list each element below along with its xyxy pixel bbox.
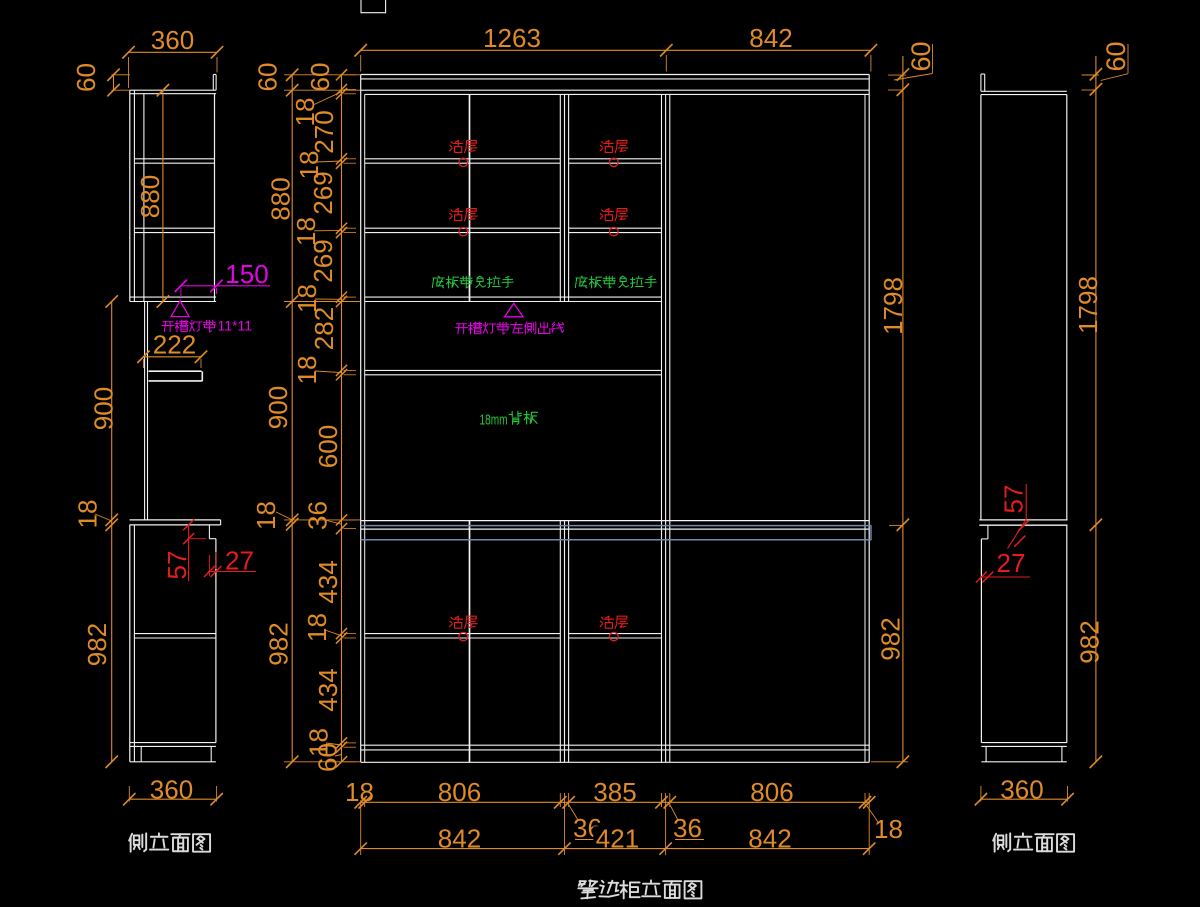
svg-text:434: 434 [313,560,343,603]
svg-text:842: 842 [748,823,791,853]
svg-text:222: 222 [153,330,196,360]
svg-text:18: 18 [874,814,903,844]
svg-text:360: 360 [1000,774,1043,804]
svg-text:269: 269 [308,239,338,282]
svg-text:150: 150 [225,259,268,289]
svg-text:36: 36 [303,501,333,530]
svg-text:982: 982 [876,617,906,660]
svg-text:360: 360 [151,25,194,55]
svg-text:270: 270 [309,110,339,153]
svg-text:60: 60 [305,63,335,92]
svg-text:269: 269 [308,171,338,214]
svg-text:18: 18 [251,501,281,530]
svg-text:360: 360 [150,774,193,804]
svg-text:982: 982 [1075,620,1105,663]
svg-text:1798: 1798 [1073,276,1103,334]
svg-text:900: 900 [263,386,293,429]
svg-text:60: 60 [71,63,101,92]
svg-text:600: 600 [313,425,343,468]
svg-text:60: 60 [1101,41,1131,71]
svg-text:806: 806 [750,777,793,807]
svg-text:60: 60 [253,63,283,92]
svg-text:57: 57 [999,485,1029,514]
svg-text:982: 982 [264,622,294,665]
svg-text:1798: 1798 [878,277,908,335]
svg-text:434: 434 [313,668,343,711]
svg-text:60: 60 [313,743,343,772]
svg-text:11*11: 11*11 [218,318,253,334]
svg-text:900: 900 [89,387,119,430]
svg-text:60: 60 [906,41,936,71]
svg-text:282: 282 [309,307,339,350]
svg-text:36: 36 [673,813,702,843]
svg-text:842: 842 [438,823,481,853]
svg-text:27: 27 [225,546,254,576]
svg-text:18: 18 [292,356,322,385]
svg-text:18: 18 [73,500,103,529]
svg-text:842: 842 [749,23,792,53]
svg-text:18mm: 18mm [480,412,508,429]
svg-text:385: 385 [593,777,636,807]
svg-text:982: 982 [82,623,112,666]
svg-text:18: 18 [302,613,332,642]
svg-text:57: 57 [162,551,192,580]
svg-text:880: 880 [266,177,296,220]
svg-text:806: 806 [438,777,481,807]
svg-text:1263: 1263 [483,23,541,53]
svg-text:421: 421 [596,823,639,853]
svg-text:27: 27 [997,548,1026,578]
svg-text:880: 880 [135,175,165,218]
